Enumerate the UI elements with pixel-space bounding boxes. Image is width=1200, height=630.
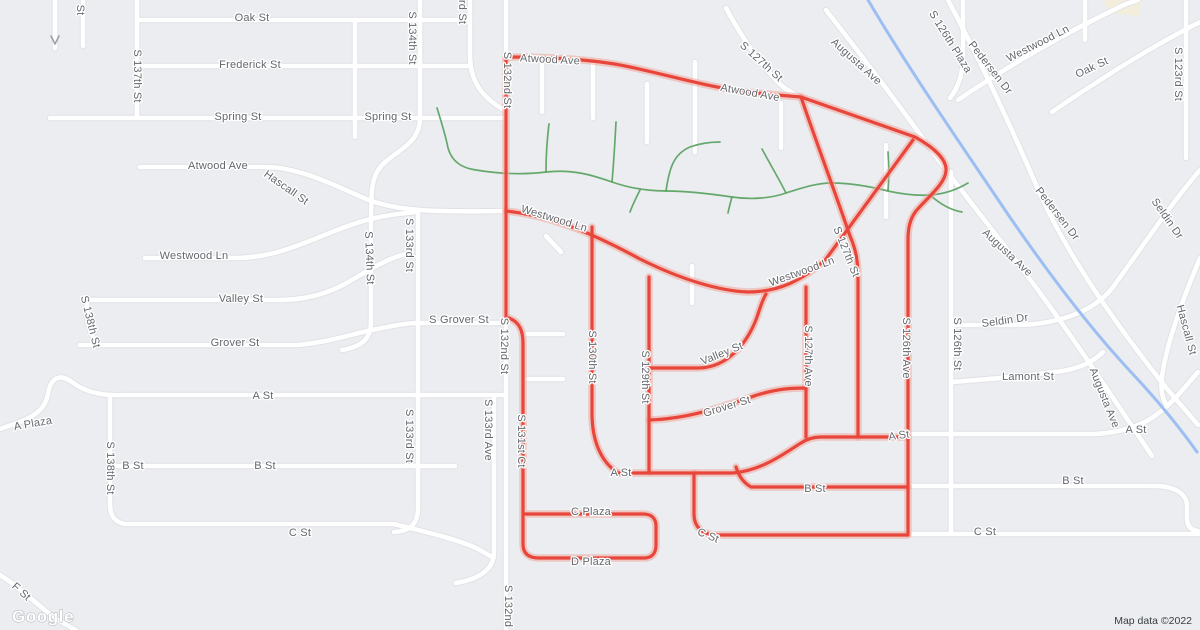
- street-label: rd St: [456, 0, 468, 24]
- street-label: Spring St: [214, 111, 261, 123]
- street-label: S 138th St: [104, 441, 116, 494]
- street-label: Frederick St: [219, 59, 281, 71]
- street-label: S Grover St: [429, 314, 489, 326]
- street-label: Grover St: [211, 337, 260, 349]
- street-label: B St: [1062, 475, 1084, 487]
- street-label: Valley St: [219, 293, 263, 305]
- street-label: S 134th St: [362, 231, 376, 285]
- street-label: St: [74, 5, 86, 16]
- street-label: S 131st Ct: [515, 414, 527, 467]
- street-label: D Plaza: [571, 556, 612, 568]
- street-label: S 133rd St: [403, 409, 415, 463]
- street-label: S 132nd: [502, 585, 514, 627]
- street-label: C Plaza: [571, 506, 612, 518]
- street-label: Spring St: [364, 111, 411, 123]
- street-label: S 133rd Ave: [482, 399, 494, 461]
- street-label: B St: [122, 460, 144, 472]
- map-container[interactable]: StOak StS 137th StFrederick StSpring StS…: [0, 0, 1200, 630]
- street-label: C St: [289, 527, 311, 539]
- street-label: B St: [254, 460, 276, 472]
- street-label: A St: [1126, 424, 1147, 436]
- street-label: S 137th St: [131, 49, 143, 102]
- street-label: S 126th St: [951, 317, 963, 370]
- street-label: A St: [611, 467, 632, 479]
- street-label: S 126th Ave: [900, 317, 912, 378]
- street-label: Oak St: [235, 12, 270, 24]
- map-canvas[interactable]: StOak StS 137th StFrederick StSpring StS…: [0, 0, 1200, 630]
- street-label: S 129th St: [639, 350, 651, 403]
- street-label: Lamont St: [1002, 371, 1054, 383]
- street-label: Westwood Ln: [160, 250, 229, 262]
- street-label: S 133rd St: [403, 218, 415, 272]
- street-label: S 130th St: [586, 330, 598, 383]
- street-label: A St: [253, 390, 274, 402]
- street-label: S 127th Ave: [802, 325, 814, 386]
- street-label: Atwood Ave: [188, 160, 248, 172]
- street-label: C St: [974, 526, 996, 538]
- map-attribution: Map data ©2022: [1114, 615, 1192, 627]
- street-label: S 123rd St: [1172, 47, 1184, 101]
- street-label: S 134th St: [406, 11, 418, 64]
- google-logo[interactable]: Google: [12, 607, 74, 626]
- street-label: S 132nd St: [501, 52, 513, 108]
- street-label: B St: [804, 483, 826, 495]
- street-label: S 132nd St: [498, 318, 510, 374]
